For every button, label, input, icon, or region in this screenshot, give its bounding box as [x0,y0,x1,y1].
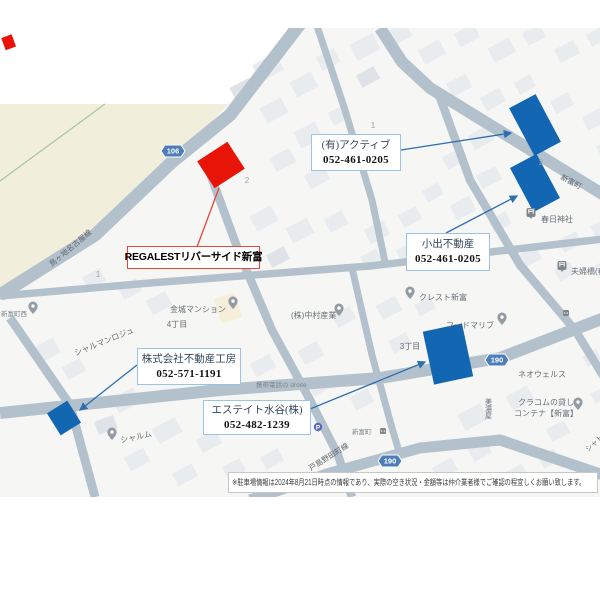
map-annotation-image: P 鳥ヶ地名古屋線 新富町 [0,0,600,600]
route-badge-190: 190 [378,455,402,467]
district-label: 4丁目 [167,320,187,329]
disclaimer-bar: ※駐車場情報は2024年8月21日時点の情報であり、実際の空き状況・金額等は仲介… [228,472,598,493]
poi-label[interactable]: クラコムの貸し [518,397,574,407]
disclaimer-text: ※駐車場情報は2024年8月21日時点の情報であり、実際の空き状況・金額等は仲介… [229,477,585,488]
company-name: エステイト水谷(株) [212,403,303,418]
poi-label[interactable]: 新富町西 [1,309,28,318]
poi-label[interactable]: 夫婦橋(春 [571,266,600,276]
poi-label[interactable]: 携帯電話の droite [256,380,307,389]
district-label: 3丁目 [400,342,420,351]
company-name: 小出不動産 [422,237,475,252]
company-phone: 052-571-1191 [156,367,221,382]
callout-subject-regalest: REGALESTリバーサイド新富 [127,246,260,269]
poi-label[interactable]: フードマリブ [446,320,494,330]
company-name: 株式会社不動産工房 [142,352,237,367]
company-phone: 052-482-1239 [224,418,290,433]
subject-name: REGALESTリバーサイド新富 [125,250,263,265]
poi-label[interactable]: 春日神社 [541,214,573,224]
traffic-signal-icon [563,310,569,316]
callout-estate-mizutani: エステイト水谷(株) 052-482-1239 [203,400,311,435]
block-number: 1 [371,121,376,130]
company-phone: 052-461-0205 [415,252,481,267]
block-number: 1 [96,270,101,279]
poi-label[interactable]: (株)中村産業 [291,310,336,320]
callout-koide: 小出不動産 052-461-0205 [406,233,490,271]
poi-label[interactable]: クレスト新富 [419,292,467,302]
block-number: 2 [245,176,250,185]
building-label: 美濃屋 [485,397,493,420]
building-label: ネオウェルス [518,370,566,379]
intersection-label: 新富町 [352,427,372,436]
poi-label[interactable]: コンテナ【新富】 [514,408,578,418]
callout-activ: (有)アクティブ 052-461-0205 [311,134,401,171]
company-phone: 052-461-0205 [323,153,389,168]
route-badge-label: 190 [384,457,397,466]
route-badge-106: 106 [161,145,185,157]
route-badge-190: 190 [485,354,509,366]
traffic-signal-icon [380,428,386,434]
poi-label[interactable]: 金城マンション [170,304,226,314]
company-name: (有)アクティブ [322,138,391,153]
map-canvas: P 鳥ヶ地名古屋線 新富町 [0,0,600,600]
callout-fudosan-kobo: 株式会社不動産工房 052-571-1191 [137,348,241,385]
block-number: 2 [539,158,544,167]
route-badge-label: 106 [167,147,180,156]
route-badge-label: 190 [491,356,504,365]
